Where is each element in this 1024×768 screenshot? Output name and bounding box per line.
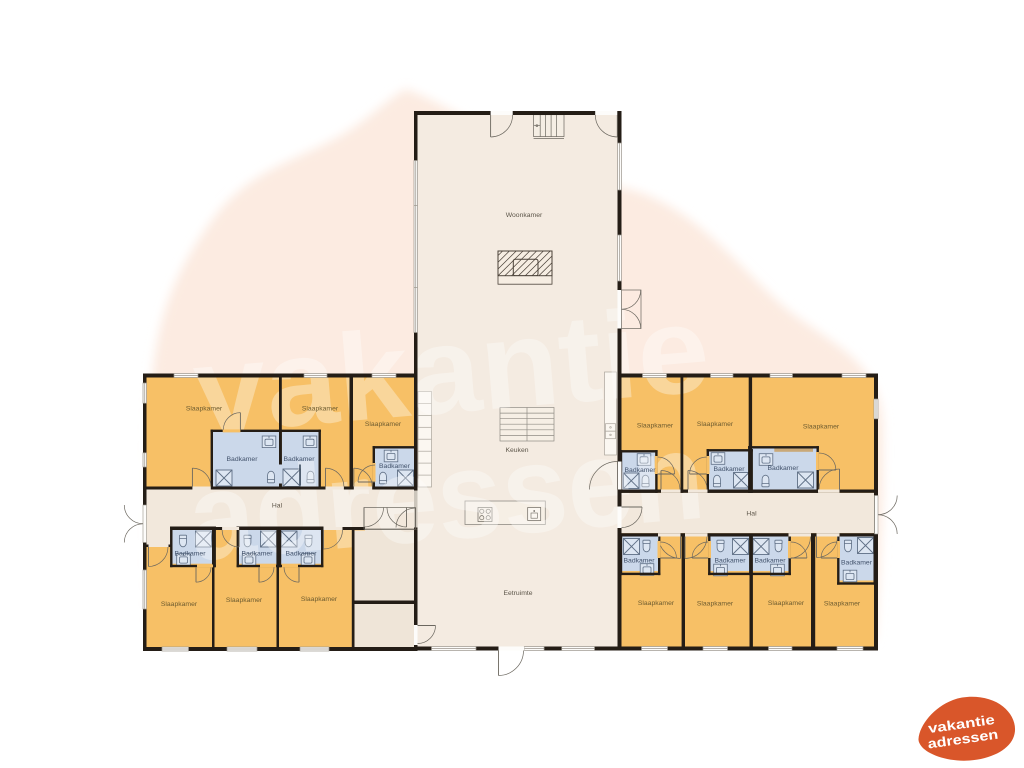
svg-text:Badkamer: Badkamer bbox=[379, 463, 411, 470]
svg-text:Badkamer: Badkamer bbox=[841, 560, 873, 567]
svg-text:Badkamer: Badkamer bbox=[242, 551, 274, 558]
svg-text:Badkamer: Badkamer bbox=[768, 465, 800, 472]
svg-text:Slaapkamer: Slaapkamer bbox=[365, 421, 402, 428]
svg-text:Badkamer: Badkamer bbox=[227, 456, 259, 463]
svg-text:Slaapkamer: Slaapkamer bbox=[768, 600, 805, 607]
svg-text:Badkamer: Badkamer bbox=[714, 466, 746, 473]
svg-text:Slaapkamer: Slaapkamer bbox=[302, 406, 339, 413]
svg-text:Slaapkamer: Slaapkamer bbox=[697, 601, 734, 608]
svg-text:Badkamer: Badkamer bbox=[284, 456, 316, 463]
svg-text:Woonkamer: Woonkamer bbox=[506, 212, 543, 219]
svg-text:Badkamer: Badkamer bbox=[624, 558, 656, 565]
svg-text:Slaapkamer: Slaapkamer bbox=[824, 601, 861, 608]
svg-text:Slaapkamer: Slaapkamer bbox=[186, 406, 223, 413]
svg-text:Slaapkamer: Slaapkamer bbox=[226, 597, 263, 604]
svg-text:Slaapkamer: Slaapkamer bbox=[803, 424, 840, 431]
svg-text:Slaapkamer: Slaapkamer bbox=[161, 601, 198, 608]
svg-text:Slaapkamer: Slaapkamer bbox=[637, 423, 674, 430]
svg-text:Badkamer: Badkamer bbox=[175, 551, 207, 558]
svg-text:Eetruimte: Eetruimte bbox=[503, 590, 532, 597]
svg-text:Keuken: Keuken bbox=[505, 447, 528, 454]
svg-text:Hal: Hal bbox=[746, 511, 757, 518]
svg-text:Slaapkamer: Slaapkamer bbox=[638, 600, 675, 607]
svg-text:Badkamer: Badkamer bbox=[286, 551, 318, 558]
svg-text:Badkamer: Badkamer bbox=[755, 558, 787, 565]
svg-text:Slaapkamer: Slaapkamer bbox=[301, 596, 338, 603]
svg-text:Badkamer: Badkamer bbox=[625, 467, 657, 474]
svg-text:Slaapkamer: Slaapkamer bbox=[697, 421, 734, 428]
svg-text:Badkamer: Badkamer bbox=[715, 558, 747, 565]
svg-text:Hal: Hal bbox=[272, 503, 283, 510]
